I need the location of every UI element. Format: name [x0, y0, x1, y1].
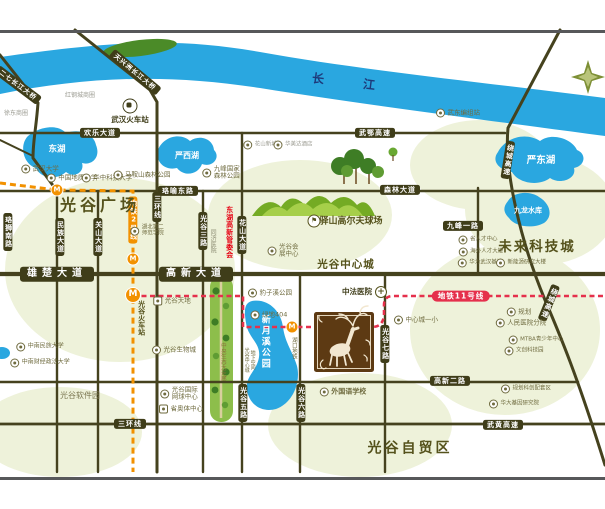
tennis-icon: [160, 390, 169, 399]
school-icon: [394, 316, 403, 325]
haiwai-label: 海外人才大楼: [470, 249, 503, 255]
yixiao-label: 中心城一小: [406, 317, 439, 324]
poi-icon: [436, 109, 445, 118]
gaoxin-2nd-road-label: 高新二路: [430, 376, 470, 386]
luoshi-south-road-label: 珞狮南路: [3, 213, 12, 251]
hospital-icon: [496, 319, 505, 328]
metro-station-icon-guanggu-railway: M: [125, 287, 141, 303]
poi-icon: [458, 236, 467, 245]
software-park-label: 光谷软件园: [60, 392, 100, 400]
yangtze-label-1: 长: [311, 72, 324, 86]
university-icon: [21, 165, 30, 174]
guanggu-5th-road-label: 光谷五路: [238, 384, 247, 422]
luoyu-east-road-label: 珞喻东路: [158, 186, 198, 196]
xinnengyuan-label: 新能源研究大楼: [507, 260, 546, 266]
future-tech-city-label: 未来科技城: [498, 240, 576, 254]
wuhan-univ-label: 武汉大学: [33, 166, 59, 173]
guanggu-railway-station-label: 光谷火车站: [137, 301, 144, 336]
poi-icon: [458, 259, 467, 268]
tiandi-label: 光谷天地: [165, 298, 191, 305]
metro-line11-label: 地铁11号线: [432, 291, 490, 302]
school-icon: [320, 388, 329, 397]
east-lake-label: 东湖: [48, 146, 65, 155]
guanggu-center-city-label: 光谷中心城: [317, 259, 375, 270]
minzu-road-label: 民族大道: [55, 218, 64, 256]
hotel-label: 华美达酒店: [285, 142, 313, 148]
guanggu-6th-road-label: 光谷六路: [296, 384, 305, 422]
golf-course-label: 驿山高尔夫球场: [319, 217, 382, 226]
sanhuan-road-label-h: 三环线: [114, 419, 146, 429]
jiulong-reservoir-label: 九龙水库: [514, 207, 542, 214]
wenchuang-label: 文创科技园: [516, 348, 544, 354]
huada-label: 华大基因研究院: [500, 401, 539, 407]
underground-space-label-2: 地下空间: [249, 350, 254, 370]
huanle-road-label: 欢乐大道: [80, 128, 120, 138]
wudong-label: 武东编组站: [448, 110, 481, 117]
minzu-univ-label: 中南民族大学: [28, 344, 64, 350]
rencai-label: 省人才中心: [470, 237, 498, 243]
wuhan-railway-station-label: 武汉火车站: [111, 116, 149, 124]
yanxi-lake-label: 严西湖: [175, 152, 199, 160]
aoti-label: 省奥体中心: [171, 406, 204, 413]
park-icon: [114, 171, 123, 180]
renmin-hospital-label: 人民医院分院: [507, 320, 546, 327]
wue-expwy-label: 武鄂高速: [355, 128, 395, 138]
deer-logo: [314, 306, 374, 372]
senlin-road-label: 森林大道: [380, 185, 420, 195]
poi-icon: [243, 141, 252, 150]
yangtze-label-2: 江: [362, 78, 375, 92]
metro-station-icon: M: [51, 184, 64, 197]
xiongchu-road-label: 雄楚大道: [20, 267, 94, 282]
guanggu-square-label: 光谷广场: [60, 198, 140, 215]
hubei-2nd-univ-label-2: 师范学院: [142, 231, 164, 237]
biocity-icon: [152, 346, 161, 355]
university-icon: [10, 359, 19, 368]
wuhuang-expwy-label: 武黄高速: [483, 420, 523, 430]
gaoxin-road-label: 高新大道: [159, 267, 233, 282]
poi-icon: [496, 259, 505, 268]
stadium-icon: [159, 405, 168, 414]
university-icon: [47, 174, 56, 183]
honggang-district-label: 红钢城商圈: [65, 93, 95, 99]
railway-station-icon: [123, 99, 138, 114]
yangtze-river: [0, 36, 605, 136]
park-icon: [248, 289, 257, 298]
mall-icon: [153, 297, 162, 306]
poi-icon: [509, 336, 518, 345]
yandong-lake-label: 严东湖: [527, 156, 556, 166]
guanggu-7th-road-label: 光谷七路: [380, 325, 389, 363]
foreign-school-label: 外国语学校: [331, 388, 366, 395]
hukou-metro-station-label: 湖口地铁: [290, 337, 296, 359]
expo-icon: [268, 247, 277, 256]
tongji-hospital-label: 同济医院: [209, 229, 215, 253]
donghu-gaoxin-gov-label: 东湖高新管委会: [225, 206, 232, 259]
park-icon: [202, 169, 211, 178]
guihua-label: 规划: [518, 309, 531, 316]
poi-icon: [459, 248, 468, 257]
map-canvas: 长 江 东湖 严西湖 严东湖 九龙水库 新月溪公园 二七长江大桥 天兴洲长江大桥…: [0, 0, 605, 509]
top-frame-bar: [0, 30, 605, 33]
jiufeng-park-label-2: 森林公园: [214, 173, 240, 180]
guanggu-ftz-label: 光谷自贸区: [368, 442, 453, 457]
poi-icon: [489, 400, 498, 409]
zhongfa-hospital-label: 中法医院: [342, 288, 372, 296]
expo-center-label-2: 展中心: [279, 251, 299, 258]
biocity-label: 光谷生物城: [164, 347, 197, 354]
underground-space-label-1: 光谷中心城: [243, 348, 248, 373]
school-icon: [130, 227, 139, 236]
compass-icon: [571, 60, 605, 94]
university-icon: [16, 343, 25, 352]
eco-corridor-label: 中央生态大走廊: [219, 343, 225, 382]
sanhuan-road-label-v: 三环线: [152, 192, 161, 222]
jiufeng-1st-road-label: 九峰一路: [443, 221, 483, 231]
poi-icon: [501, 385, 510, 394]
poi-icon: [504, 347, 513, 356]
huashan-road-label: 花山大道: [237, 216, 246, 254]
lvdi404-label: 绿地404: [262, 312, 287, 319]
metro-station-icon-hukou: M: [286, 321, 299, 334]
bottom-frame-bar: [0, 477, 605, 480]
xudong-district-label: 徐东商圈: [4, 111, 28, 117]
xinyuexi-park-label: 新月溪公园: [259, 315, 268, 370]
guanshan-road-label: 关山大道: [93, 218, 102, 256]
guanggu-3rd-road-label: 光谷三路: [198, 212, 207, 250]
caijing-univ-label: 中南财经政法大学: [22, 360, 70, 366]
metro-station-icon: M: [127, 253, 140, 266]
guihua-area-label: 规划科创配套区: [512, 386, 551, 392]
mtba-label: MTBA青少年中心: [520, 337, 563, 343]
poi-icon: [507, 308, 516, 317]
baozixi-park-label: 豹子溪公园: [260, 290, 293, 297]
hospital-cross-icon: +: [375, 286, 387, 298]
poi-icon: [273, 141, 282, 150]
poi-icon: [251, 311, 260, 320]
tennis-center-label-2: 网球中心: [172, 394, 198, 401]
university-icon: [82, 174, 91, 183]
maanshan-park-label: 马鞍山森林公园: [125, 172, 171, 179]
